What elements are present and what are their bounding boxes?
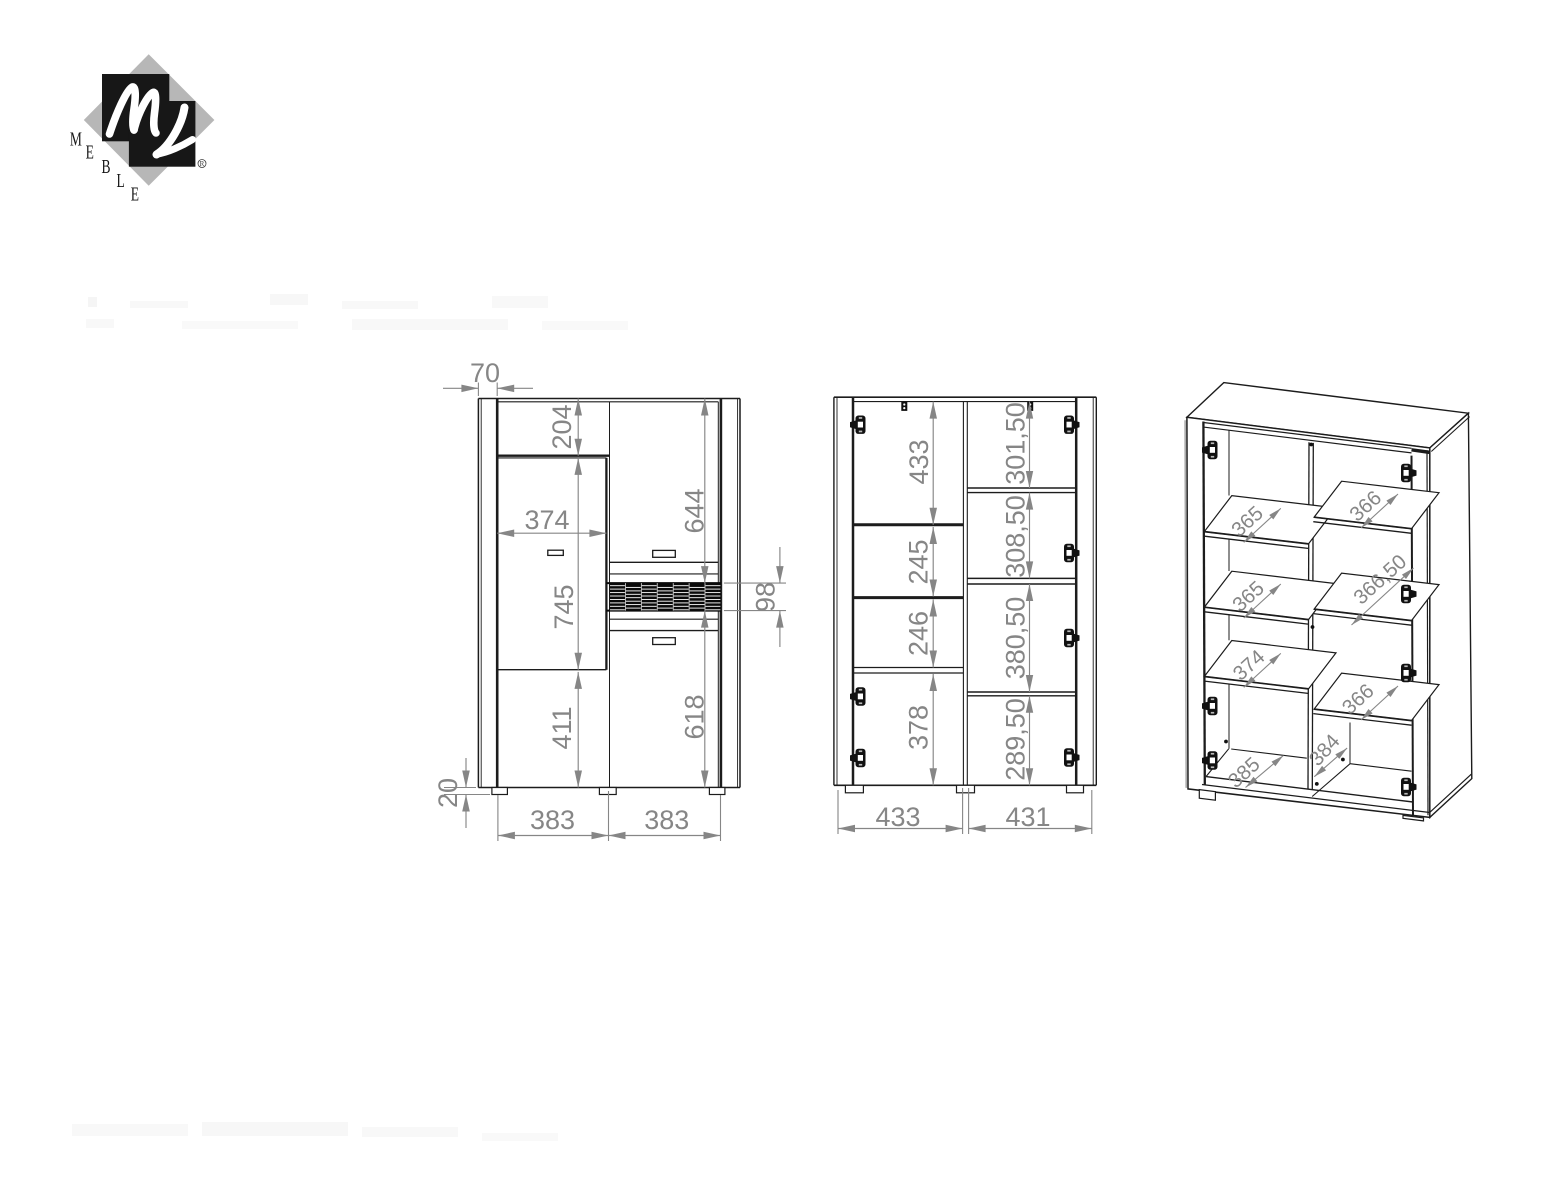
svg-text:E: E	[131, 183, 139, 205]
svg-text:380,50: 380,50	[1001, 597, 1031, 680]
svg-text:70: 70	[470, 358, 500, 388]
svg-text:433: 433	[875, 802, 920, 832]
svg-text:378: 378	[904, 705, 934, 750]
svg-text:E: E	[86, 141, 94, 163]
svg-text:M: M	[70, 128, 82, 150]
svg-text:B: B	[101, 155, 110, 177]
svg-text:245: 245	[904, 539, 934, 584]
svg-text:644: 644	[680, 488, 710, 533]
svg-text:20: 20	[433, 778, 463, 808]
svg-text:308,50: 308,50	[1001, 495, 1031, 578]
svg-text:433: 433	[904, 439, 934, 484]
svg-text:R: R	[200, 160, 205, 168]
svg-text:98: 98	[751, 582, 781, 612]
svg-text:204: 204	[547, 404, 577, 449]
svg-text:L: L	[116, 169, 124, 191]
svg-text:411: 411	[547, 706, 577, 749]
svg-text:745: 745	[549, 584, 579, 629]
svg-text:374: 374	[524, 505, 569, 535]
svg-text:383: 383	[530, 805, 575, 835]
svg-text:431: 431	[1005, 802, 1050, 832]
svg-text:383: 383	[644, 805, 689, 835]
svg-text:246: 246	[904, 611, 934, 656]
svg-text:618: 618	[680, 694, 710, 739]
svg-text:289,50: 289,50	[1001, 698, 1031, 781]
svg-text:301,50: 301,50	[1001, 402, 1031, 485]
